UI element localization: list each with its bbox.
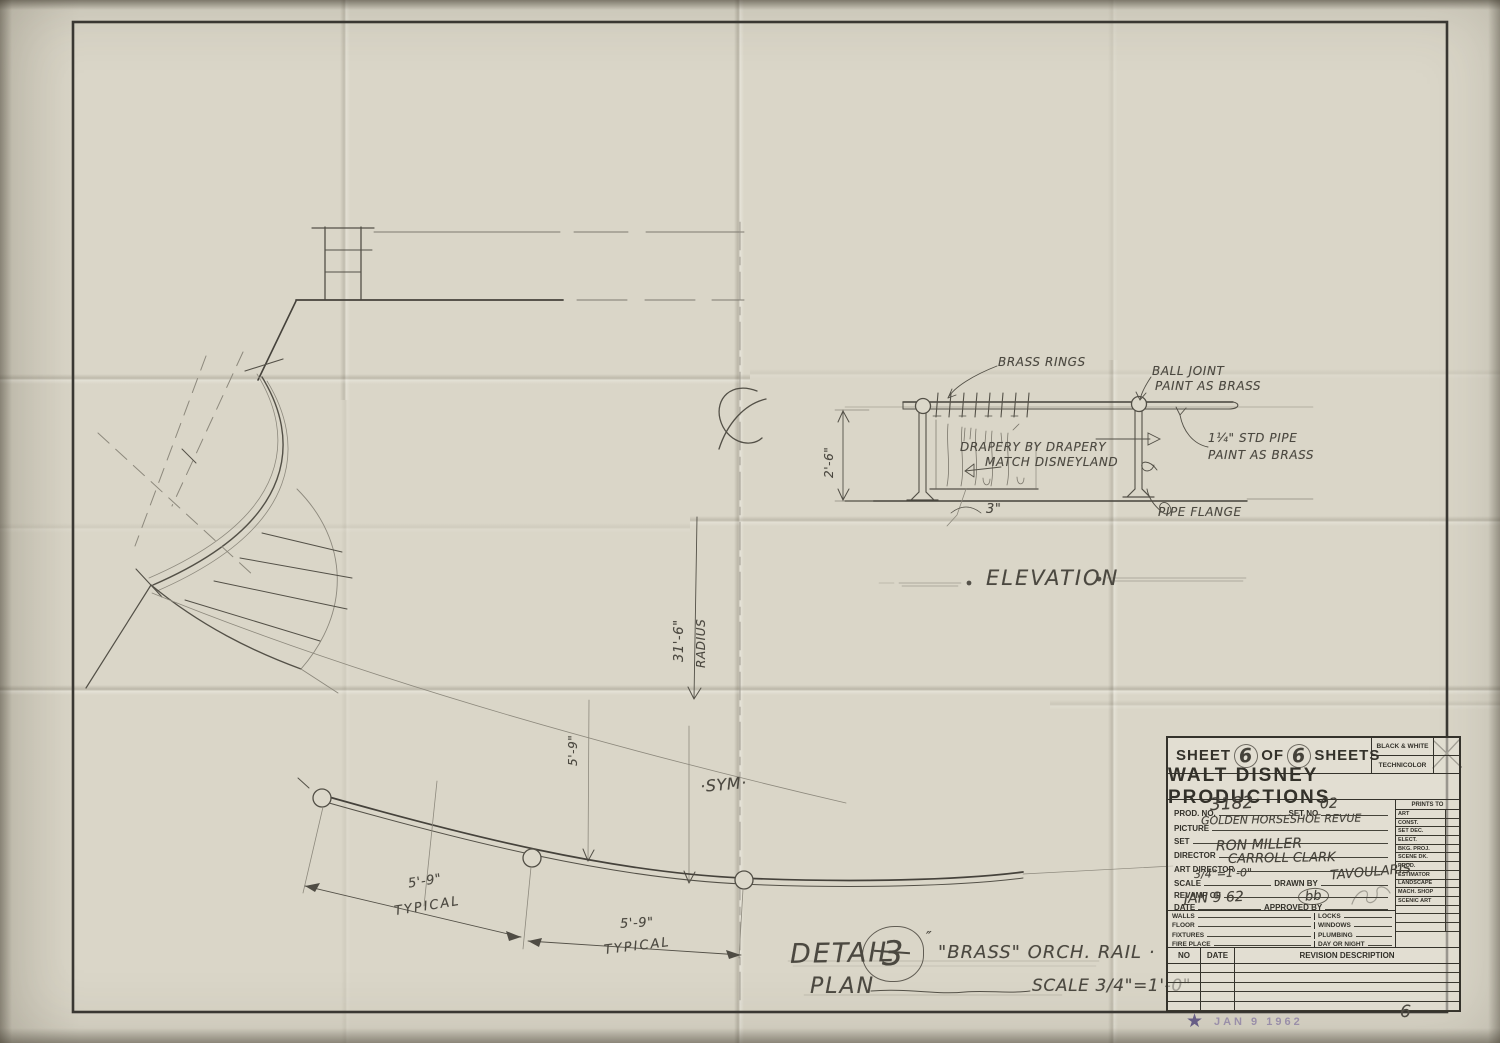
- height-dim-label: 2'-6": [822, 447, 836, 478]
- plan-dimension-lines: [583, 517, 701, 883]
- brass-rings-label: BRASS RINGS: [998, 355, 1086, 369]
- brass-rings-marks: [936, 393, 1029, 417]
- spacing-a-label: 5'-9": [407, 871, 443, 891]
- set-label: SET: [1174, 837, 1190, 846]
- revision-empty-row: [1168, 983, 1459, 992]
- sym-label: ·SYM·: [699, 773, 747, 796]
- title-block: SHEET 6 OF 6 SHEETS BLACK & WHITE TECHNI…: [1166, 736, 1461, 1012]
- checklist-locks: LOCKS: [1314, 913, 1395, 920]
- fold-crease: [750, 369, 1500, 379]
- fold-crease: [1108, 0, 1118, 360]
- prints-to-header: PRINTS TO: [1396, 800, 1459, 810]
- prints-to-item: MACH. SHOP: [1396, 888, 1459, 897]
- rail-spacing-rotated: 5'-9": [566, 735, 580, 766]
- prints-to-empty-row: [1396, 923, 1459, 932]
- picture-value: GOLDEN HORSESHOE REVUE: [1201, 812, 1362, 828]
- fold-crease: [0, 374, 750, 384]
- plan-stage-edge: [258, 227, 744, 380]
- drapery-label-2: MATCH DISNEYLAND: [985, 455, 1118, 469]
- radius-dim-label: 31'-6": [672, 619, 687, 662]
- of-word: OF: [1261, 747, 1284, 764]
- detail-plan-word: PLAN: [810, 974, 875, 999]
- stamp-date: JAN 9 1962: [1214, 1016, 1303, 1028]
- pipe-label-2: PAINT AS BRASS: [1208, 448, 1314, 462]
- prints-to-item: SET DEC.: [1396, 827, 1459, 836]
- sheet-word: SHEET: [1176, 747, 1231, 764]
- drawn-by-label: DRAWN BY: [1274, 879, 1318, 888]
- checklist-windows: WINDOWS: [1314, 922, 1395, 929]
- prints-to-item: BKG. PROJ.: [1396, 845, 1459, 854]
- revision-col-no: NO: [1168, 948, 1201, 963]
- revision-col-description: REVISION DESCRIPTION: [1235, 948, 1459, 963]
- blueprint-sheet: 31'-6" RADIUS 5'-9" ·SYM· 5'-9" TYPICAL …: [0, 0, 1500, 1043]
- radius-word-label: RADIUS: [694, 619, 708, 668]
- rail-post: [735, 871, 753, 889]
- pipe-flange-label: PIPE FLANGE: [1158, 505, 1242, 519]
- checklist-floor: FLOOR: [1172, 922, 1314, 929]
- fold-crease: [0, 523, 690, 533]
- typical-a-label: TYPICAL: [393, 894, 461, 919]
- detail-number-suffix: ″: [926, 928, 932, 946]
- prints-to-item: CONST.: [1396, 819, 1459, 828]
- plan-orchestra-rail: [298, 778, 1173, 959]
- spacing-b-label: 5'-9": [620, 915, 655, 932]
- color-checkbox-bw: [1434, 738, 1459, 755]
- detail-word: DETAIL: [790, 937, 896, 970]
- prints-to-item: LANDSCAPE: [1396, 880, 1459, 889]
- elevation-title: ELEVATION: [986, 566, 1119, 590]
- ball-joint-label-1: BALL JOINT: [1152, 364, 1224, 378]
- director-label: DIRECTOR: [1174, 851, 1216, 860]
- elevation-drawing: [835, 366, 1313, 586]
- revision-empty-row: [1168, 992, 1459, 1001]
- ball-joint: [916, 399, 931, 414]
- prints-to-item: ELECT.: [1396, 836, 1459, 845]
- paper-shading-left: [0, 0, 80, 1043]
- centerline-symbol: [719, 388, 762, 443]
- fold-crease: [0, 685, 1500, 695]
- fold-crease: [1108, 360, 1118, 1043]
- detail-number: 3: [882, 934, 904, 974]
- fold-crease: [690, 516, 1500, 526]
- revision-empty-row: [1168, 964, 1459, 973]
- scan-edge: [0, 1028, 1500, 1043]
- centerline: [719, 222, 766, 1004]
- pipe-flange-left: [907, 492, 938, 500]
- revision-col-date: DATE: [1201, 948, 1235, 963]
- set-no-value: 02: [1320, 796, 1338, 813]
- detail-number-circle: 3: [862, 926, 924, 982]
- fold-crease: [340, 0, 350, 400]
- stamp-star-icon: ★: [1186, 1010, 1203, 1033]
- prints-to-item: ART: [1396, 810, 1459, 819]
- detail-caption-guides: [788, 961, 1099, 995]
- hem-dim-label: 3": [986, 502, 1001, 517]
- date-value: JAN 9 62: [1184, 889, 1244, 907]
- checklist-fixtures: FIXTURES: [1172, 932, 1314, 939]
- checklist-plumbing: PLUMBING: [1314, 932, 1395, 939]
- detail-title: "BRASS" ORCH. RAIL ·: [938, 942, 1155, 963]
- prints-to-item: SCENIC ART: [1396, 897, 1459, 906]
- plan-curved-stair: [86, 352, 846, 803]
- prints-to-empty-row: [1396, 906, 1459, 915]
- prints-to-empty-row: [1396, 914, 1459, 923]
- drapery-folds: [947, 424, 1024, 486]
- prints-to-item: SCENE DK.: [1396, 853, 1459, 862]
- revision-empty-row: [1168, 1002, 1459, 1011]
- rail-post: [313, 789, 331, 807]
- checklist-walls: WALLS: [1172, 913, 1314, 920]
- fold-crease: [1050, 700, 1500, 710]
- revision-empty-row: [1168, 973, 1459, 982]
- detail-number-strike: [874, 950, 910, 955]
- scan-edge: [0, 0, 12, 1043]
- color-option-bw: BLACK & WHITE: [1372, 738, 1434, 755]
- art-director-value: CARROLL CLARK: [1228, 850, 1336, 867]
- pipe-flange-right: [1123, 489, 1154, 497]
- scale-value: 3/4"=1'-0": [1194, 866, 1252, 881]
- sheets-word: SHEETS: [1314, 747, 1380, 764]
- prod-no-value: 3182: [1210, 793, 1254, 815]
- ball-joint-label-2: PAINT AS BRASS: [1155, 379, 1261, 393]
- fold-crease: [341, 400, 351, 1043]
- drapery-label-1: DRAPERY BY DRAPERY: [960, 440, 1106, 454]
- scan-edge: [1488, 0, 1500, 1043]
- fold-crease: [734, 0, 744, 1043]
- typical-b-label: TYPICAL: [603, 935, 671, 958]
- scan-edge: [0, 0, 1500, 10]
- rail-post: [523, 849, 541, 867]
- ball-joint: [1132, 397, 1147, 412]
- pipe-label-1: 1¼" STD PIPE: [1208, 431, 1297, 445]
